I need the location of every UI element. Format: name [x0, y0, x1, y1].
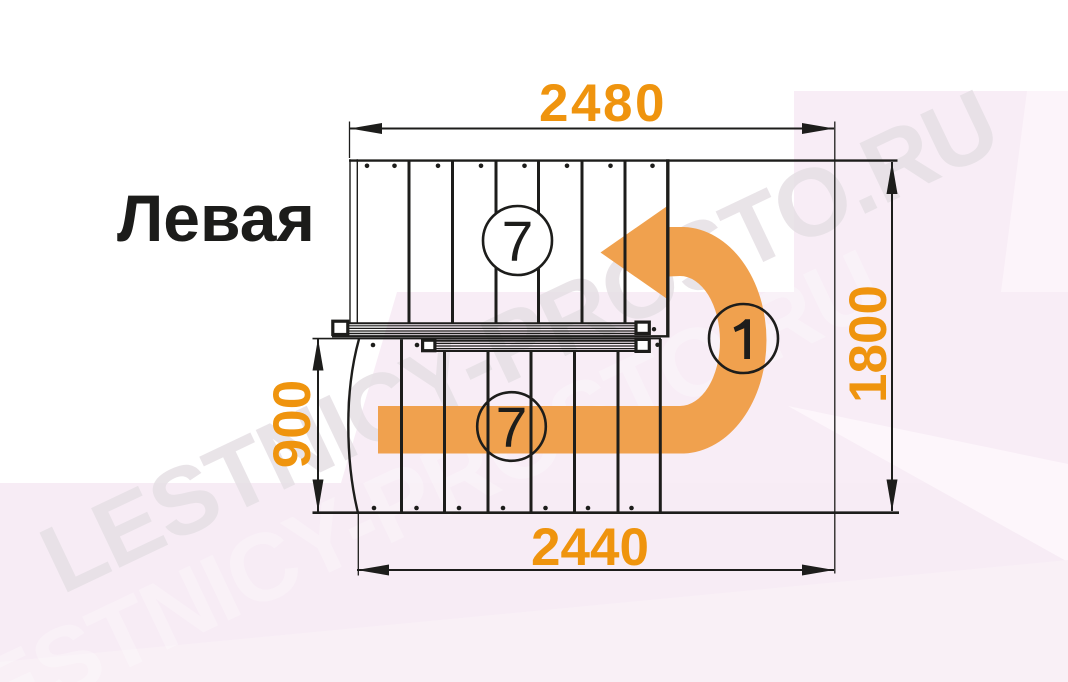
svg-text:Левая: Левая — [117, 181, 315, 255]
svg-text:7: 7 — [502, 210, 534, 274]
svg-text:7: 7 — [496, 396, 528, 460]
svg-text:2440: 2440 — [531, 518, 649, 577]
svg-text:1800: 1800 — [839, 285, 898, 403]
svg-text:900: 900 — [263, 380, 322, 468]
svg-text:2480: 2480 — [539, 74, 667, 133]
